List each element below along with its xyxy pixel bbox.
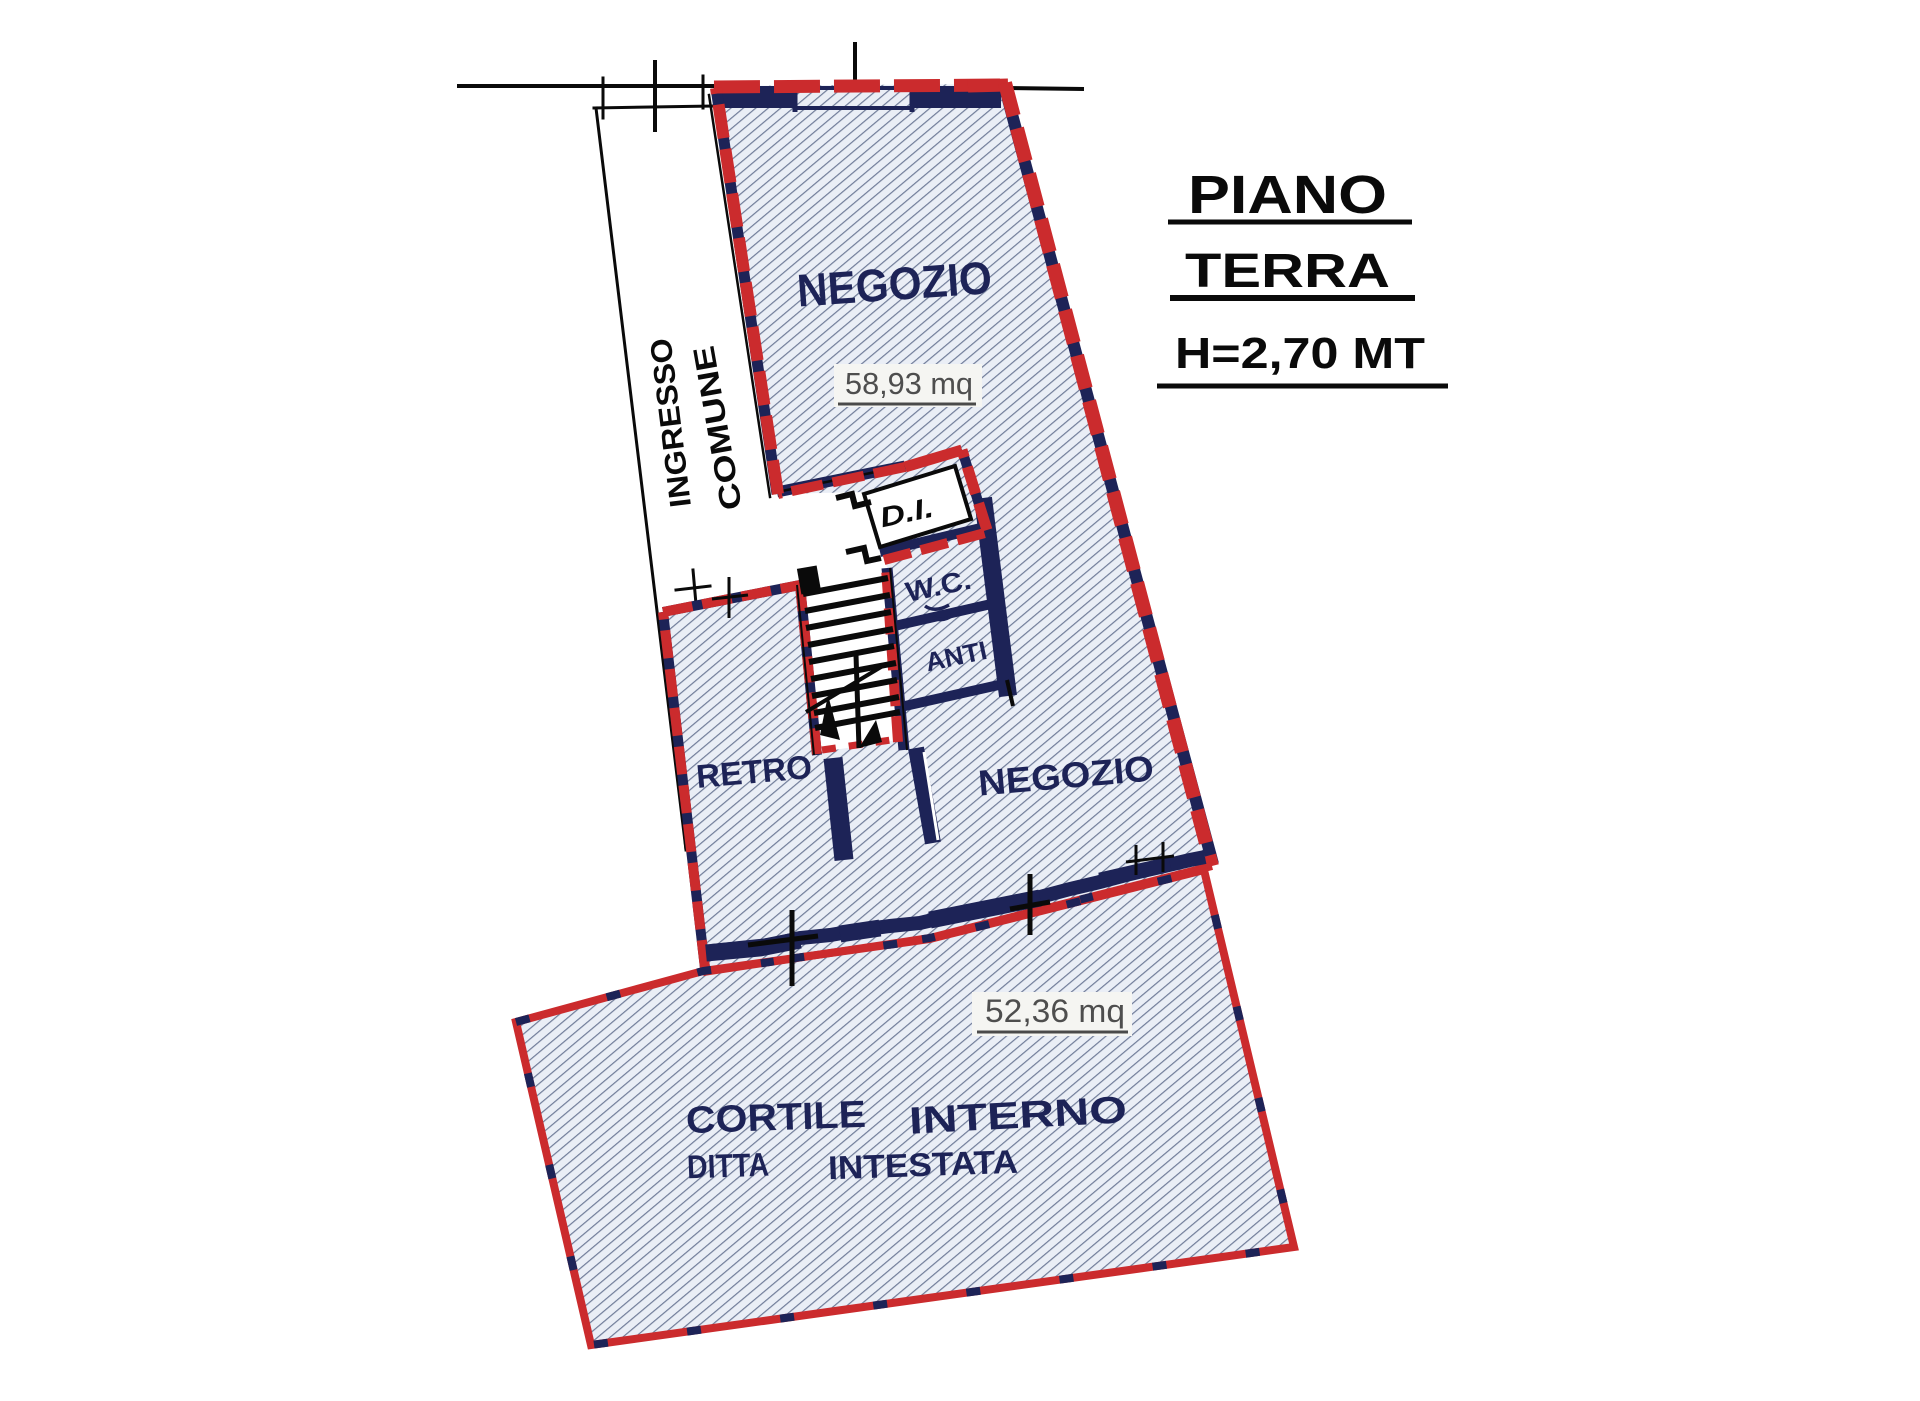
svg-text:INTESTATA: INTESTATA (827, 1143, 1018, 1187)
svg-text:TERRA: TERRA (1185, 245, 1390, 298)
svg-text:H=2,70 MT: H=2,70 MT (1175, 329, 1425, 378)
svg-text:52,36 mq: 52,36 mq (985, 993, 1125, 1029)
svg-text:58,93 mq: 58,93 mq (845, 366, 973, 401)
svg-text:PIANO: PIANO (1188, 165, 1387, 225)
svg-text:DITTA: DITTA (686, 1146, 769, 1186)
svg-text:CORTILE: CORTILE (685, 1094, 866, 1142)
